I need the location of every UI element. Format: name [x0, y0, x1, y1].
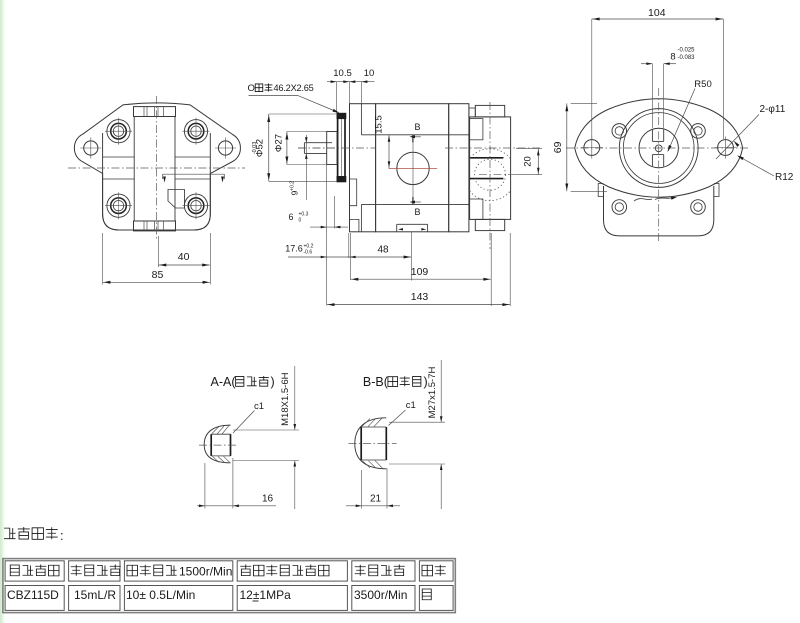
svg-text:10.5: 10.5 — [333, 68, 352, 79]
svg-text:O: O — [248, 83, 255, 94]
svg-text:R12: R12 — [775, 172, 794, 183]
svg-text:17.6: 17.6 — [285, 244, 303, 254]
svg-text:Φ27: Φ27 — [273, 134, 284, 152]
svg-text:c1: c1 — [254, 401, 264, 412]
svg-text:40: 40 — [178, 251, 190, 263]
svg-text:69: 69 — [552, 141, 564, 153]
svg-text:3500r/Min: 3500r/Min — [354, 588, 407, 602]
svg-text:): ) — [271, 375, 275, 389]
svg-text:-0.083: -0.083 — [678, 55, 696, 61]
svg-text:16: 16 — [262, 494, 274, 505]
svg-text:10: 10 — [364, 68, 375, 79]
svg-text:2-φ11: 2-φ11 — [760, 104, 786, 115]
svg-text::: : — [60, 528, 64, 543]
svg-text:CBZ115D: CBZ115D — [7, 588, 59, 602]
svg-text:143: 143 — [411, 291, 429, 303]
svg-text:10± 0.5L/Min: 10± 0.5L/Min — [126, 588, 195, 602]
svg-text:B-B(: B-B( — [363, 375, 389, 389]
svg-text:8: 8 — [670, 52, 675, 63]
svg-text:c1: c1 — [406, 400, 416, 411]
svg-text:20: 20 — [523, 156, 534, 167]
svg-text:85: 85 — [152, 269, 164, 281]
svg-text:15.5: 15.5 — [374, 115, 385, 134]
svg-text:109: 109 — [411, 266, 429, 278]
svg-text:21: 21 — [370, 494, 382, 505]
svg-text:6: 6 — [288, 212, 293, 222]
svg-text:-0.025: -0.025 — [678, 48, 696, 54]
svg-text:M27x1.5-7H: M27x1.5-7H — [427, 366, 438, 418]
svg-text:B: B — [414, 207, 420, 217]
svg-text:A-A(: A-A( — [211, 375, 237, 389]
svg-text:M18X1.5-6H: M18X1.5-6H — [280, 372, 291, 425]
svg-text:46.2X2.65: 46.2X2.65 — [274, 83, 314, 93]
svg-text:12±1MPa: 12±1MPa — [240, 588, 292, 602]
svg-text:104: 104 — [648, 7, 666, 19]
svg-text:-0.03: -0.03 — [252, 142, 258, 155]
svg-text:+0.2: +0.2 — [290, 181, 296, 191]
svg-text:1500r/Min: 1500r/Min — [179, 565, 232, 579]
svg-text:B: B — [414, 122, 420, 132]
svg-text:0: 0 — [299, 218, 302, 224]
svg-text:R50: R50 — [694, 79, 711, 90]
svg-text:48: 48 — [377, 245, 389, 256]
svg-text:15mL/R: 15mL/R — [74, 588, 116, 602]
svg-text:-0.6: -0.6 — [304, 250, 313, 256]
